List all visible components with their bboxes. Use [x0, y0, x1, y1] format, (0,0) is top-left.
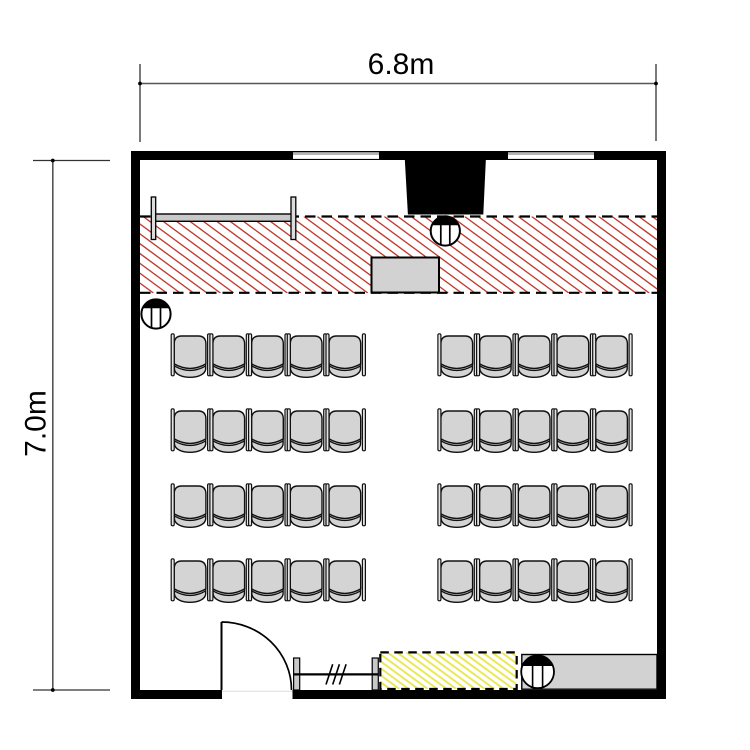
svg-text:6.8m: 6.8m — [368, 48, 435, 81]
svg-text:7.0m: 7.0m — [20, 390, 53, 457]
